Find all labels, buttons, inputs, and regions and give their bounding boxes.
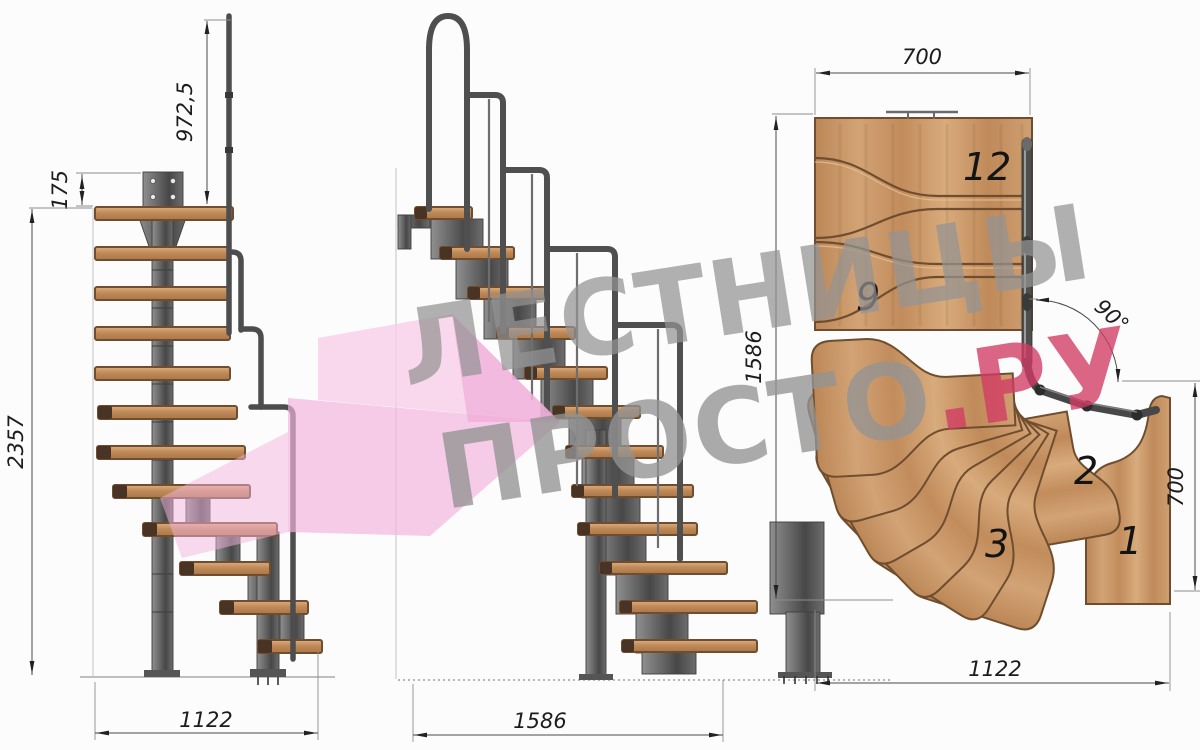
step-label-3: 3	[985, 522, 1009, 566]
dim-handrail-height: 972,5	[173, 82, 197, 142]
dim-total-height: 2357	[4, 415, 28, 469]
front-steps	[95, 207, 322, 653]
front-elevation-view: 972,5 175 2357 1122	[4, 16, 335, 740]
side-dimensions: 1586	[413, 680, 723, 742]
dim-plan-bottom-length: 1122	[968, 657, 1021, 681]
secondary-base-plate	[250, 669, 286, 677]
central-column	[152, 212, 173, 674]
dim-plan-top-width: 700	[902, 45, 942, 69]
anchor-bolts	[258, 677, 278, 685]
drawing-canvas: 972,5 175 2357 1122	[0, 0, 1200, 750]
dim-front-width: 1122	[179, 708, 232, 732]
staircase-technical-drawing: 972,5 175 2357 1122	[0, 0, 1200, 750]
step-label-1: 1	[1118, 519, 1142, 563]
turn-base-plate	[778, 672, 832, 678]
dim-plan-right-width: 700	[1164, 467, 1188, 507]
dim-side-length: 1586	[513, 709, 566, 733]
column-base-plate	[144, 670, 180, 677]
wall-bracket-leg	[398, 215, 411, 249]
step-label-2: 2	[1074, 449, 1098, 493]
dim-top-rise: 175	[48, 170, 72, 210]
step-label-12: 12	[963, 145, 1011, 189]
support-base	[579, 674, 613, 680]
top-mount-plate	[143, 172, 183, 207]
